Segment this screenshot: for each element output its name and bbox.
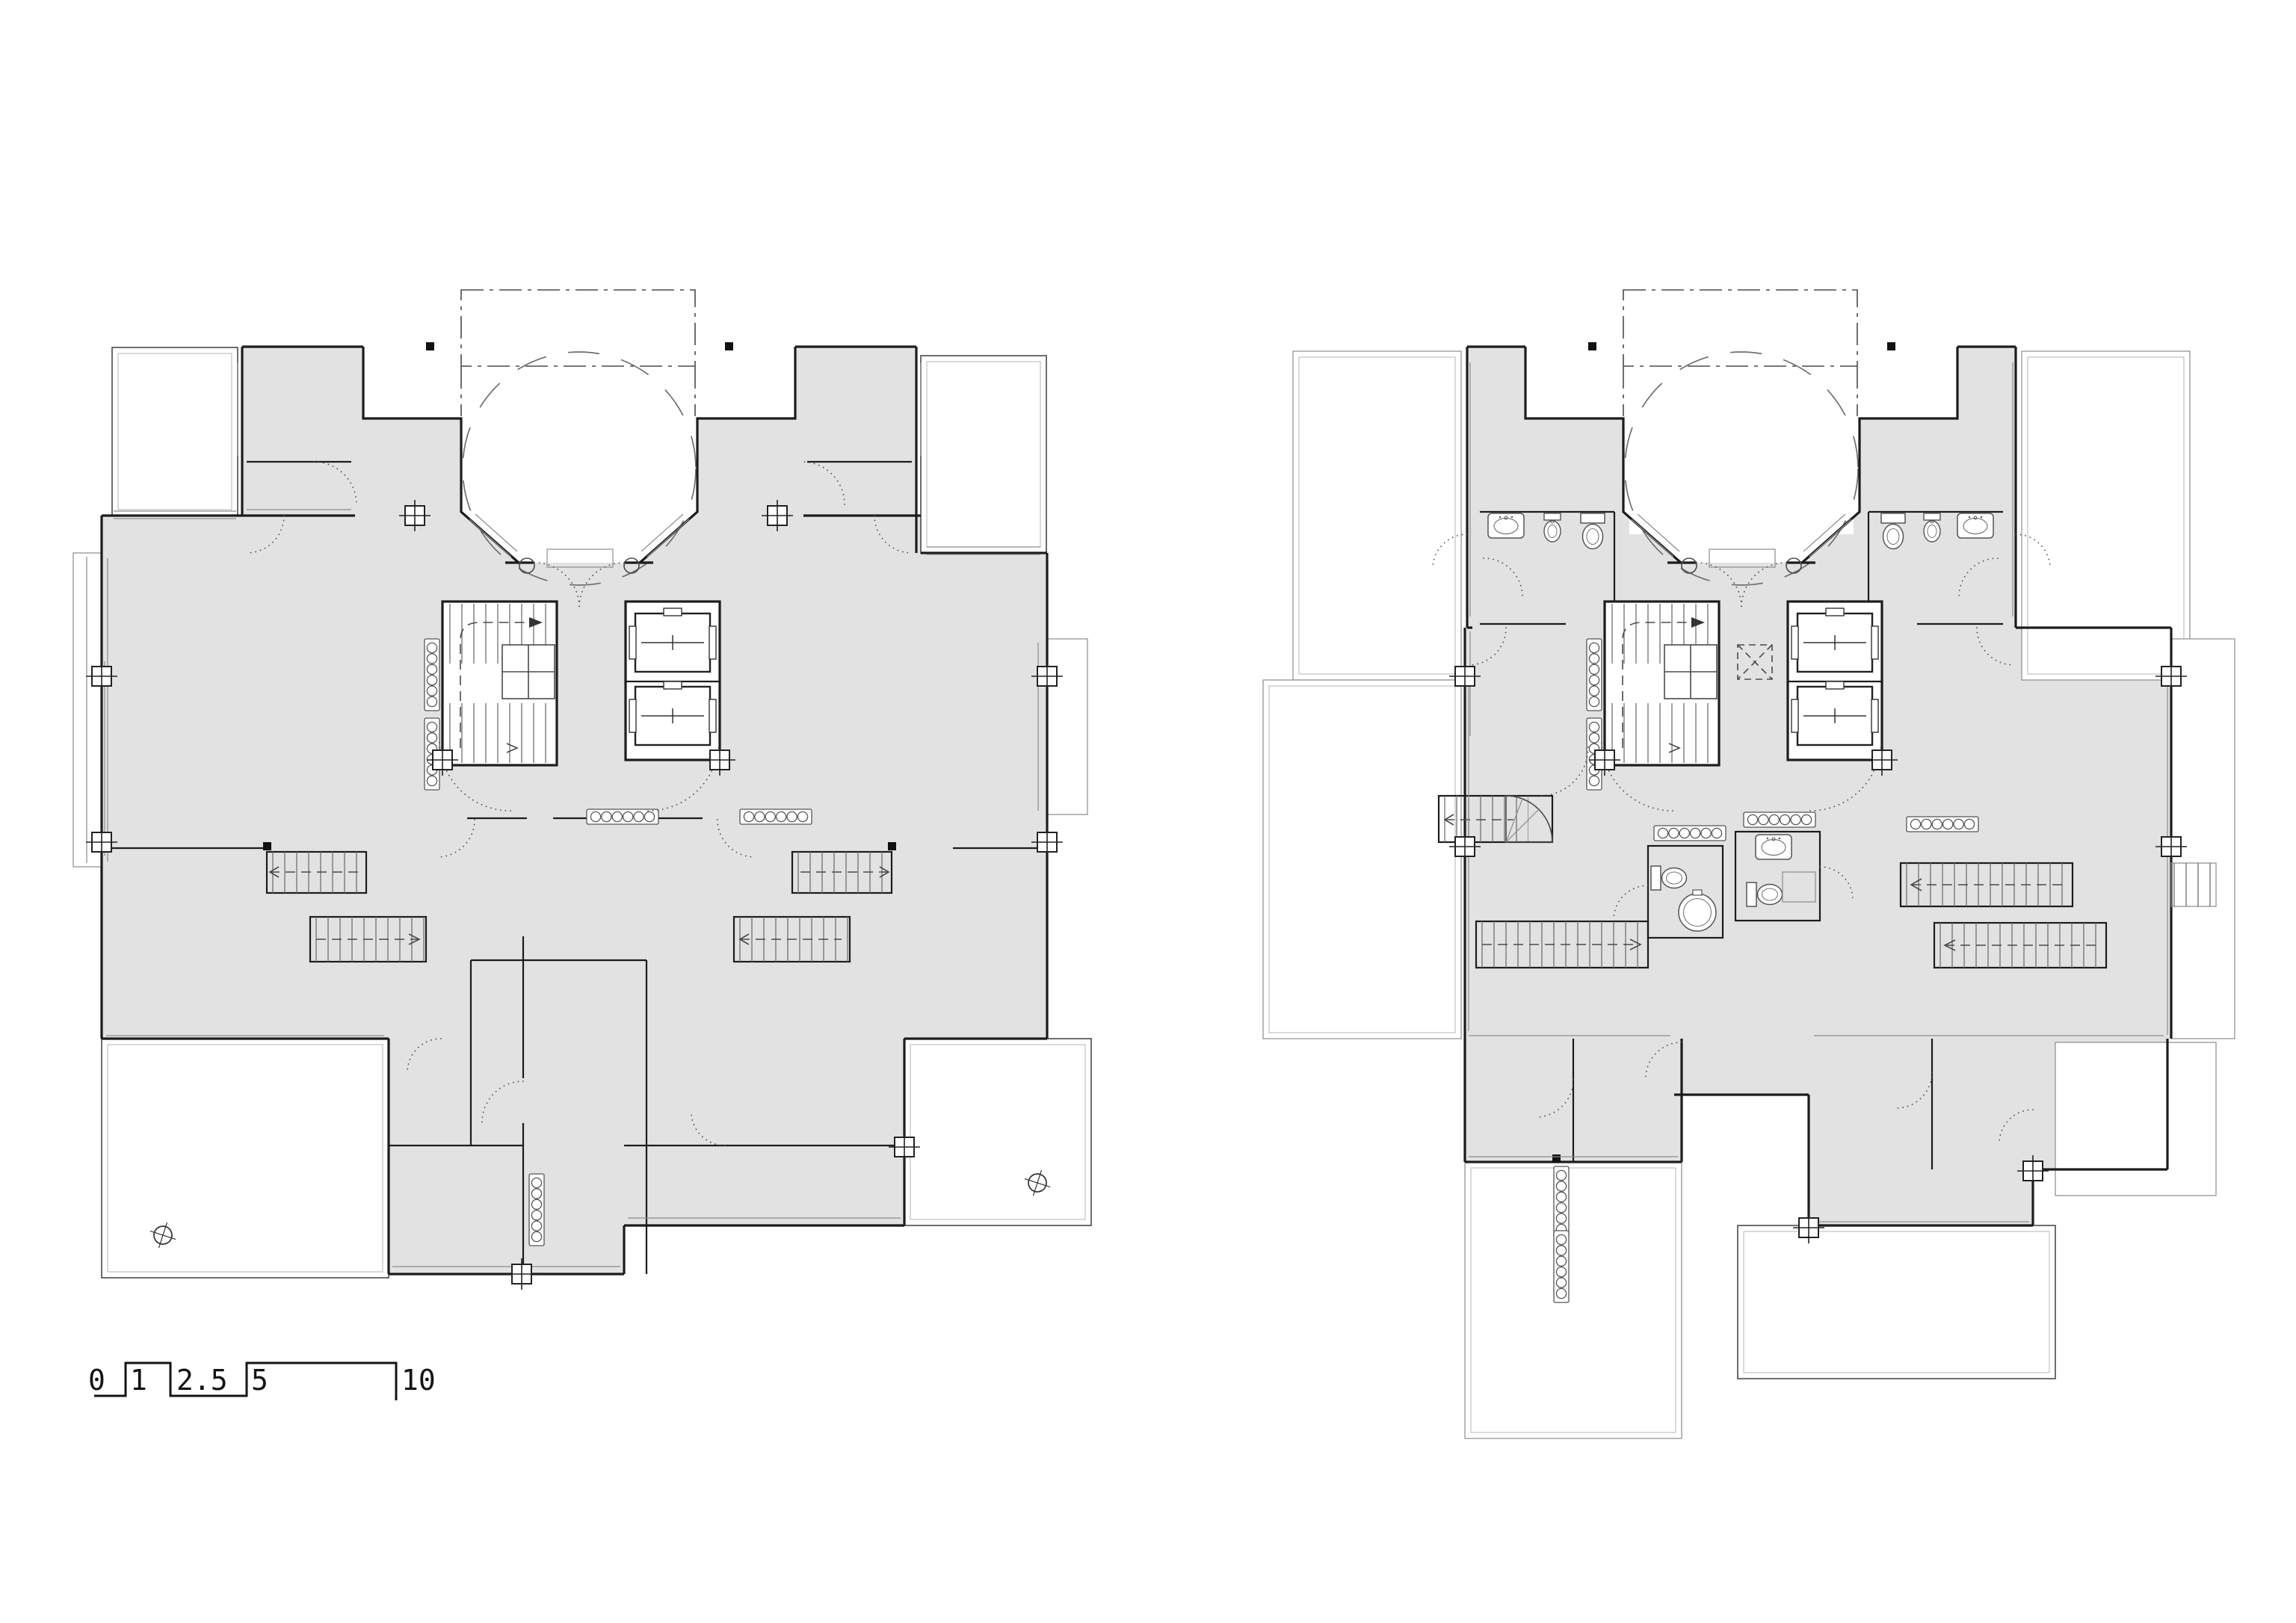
bidet-icon — [1544, 513, 1561, 542]
scale-label-1: 1 — [130, 1364, 147, 1397]
elevator-icon — [629, 608, 716, 672]
sink-icon — [1488, 513, 1524, 538]
wall-marker — [426, 342, 434, 350]
straight-stair — [267, 852, 366, 893]
radiator-icon — [587, 809, 658, 824]
sink-icon — [1957, 513, 1993, 538]
elevator-icon — [629, 681, 716, 745]
scale-label-0: 0 — [88, 1364, 105, 1397]
scale-label-2.5: 2.5 — [176, 1364, 228, 1397]
straight-stair — [310, 917, 426, 962]
floor-plan-left — [73, 290, 1091, 1290]
wall-marker — [1887, 342, 1895, 350]
floor-plan-right — [1263, 290, 2235, 1438]
scale-bar: 0 1 2.5 5 10 — [88, 1363, 436, 1400]
drawing-sheet: 0 1 2.5 5 10 — [0, 0, 2296, 1623]
radiator-icon — [1744, 812, 1815, 827]
radiator-icon — [1907, 817, 1978, 832]
straight-stair — [734, 917, 850, 962]
sink-icon — [1756, 835, 1792, 859]
toilet-icon — [1881, 513, 1905, 549]
bidet-icon — [1924, 513, 1940, 542]
elevator-shaft — [626, 602, 720, 760]
switchback-stair-core — [1605, 602, 1719, 765]
straight-stair — [1901, 863, 2073, 906]
toilet-icon — [1651, 866, 1687, 890]
scale-label-10: 10 — [401, 1364, 436, 1397]
straight-stair — [1934, 923, 2106, 968]
wall-marker — [263, 842, 271, 850]
wall-marker — [725, 342, 733, 350]
toilet-icon — [1747, 882, 1783, 906]
elevator-icon — [1792, 608, 1878, 672]
straight-stair — [792, 852, 892, 893]
radiator-icon — [425, 639, 439, 711]
toilet-icon — [1581, 513, 1605, 549]
terrace-radiator — [1552, 1154, 1569, 1302]
switchback-stair-core — [442, 602, 557, 765]
wall-marker — [1588, 342, 1596, 350]
wall-marker — [888, 842, 896, 850]
radiator-icon — [1654, 826, 1726, 841]
scale-label-5: 5 — [251, 1364, 268, 1397]
radiator-icon — [740, 809, 812, 824]
elevator-shaft — [1788, 602, 1882, 760]
radiator-icon — [529, 1174, 544, 1246]
straight-stair — [1476, 921, 1648, 968]
radiator-icon — [1587, 639, 1602, 711]
elevator-icon — [1792, 681, 1878, 745]
floor-plans-drawing: 0 1 2.5 5 10 — [0, 0, 2296, 1623]
